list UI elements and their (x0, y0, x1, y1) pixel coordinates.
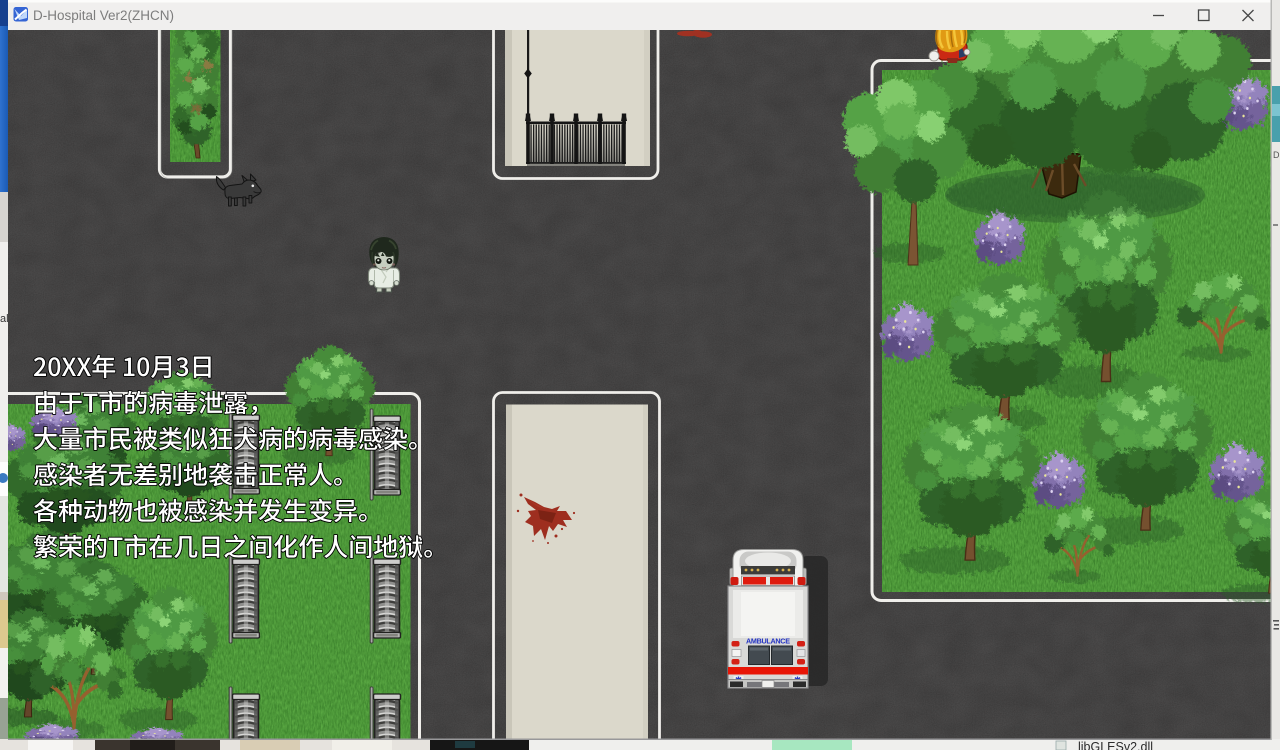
svg-text:libGLESv2.dll: libGLESv2.dll (1078, 740, 1153, 750)
svg-text:AMBULANCE: AMBULANCE (746, 637, 790, 646)
svg-text:D: D (1273, 150, 1280, 160)
svg-text:al: al (0, 313, 9, 325)
svg-text:D-Hospital Ver2(ZHCN): D-Hospital Ver2(ZHCN) (33, 8, 174, 23)
